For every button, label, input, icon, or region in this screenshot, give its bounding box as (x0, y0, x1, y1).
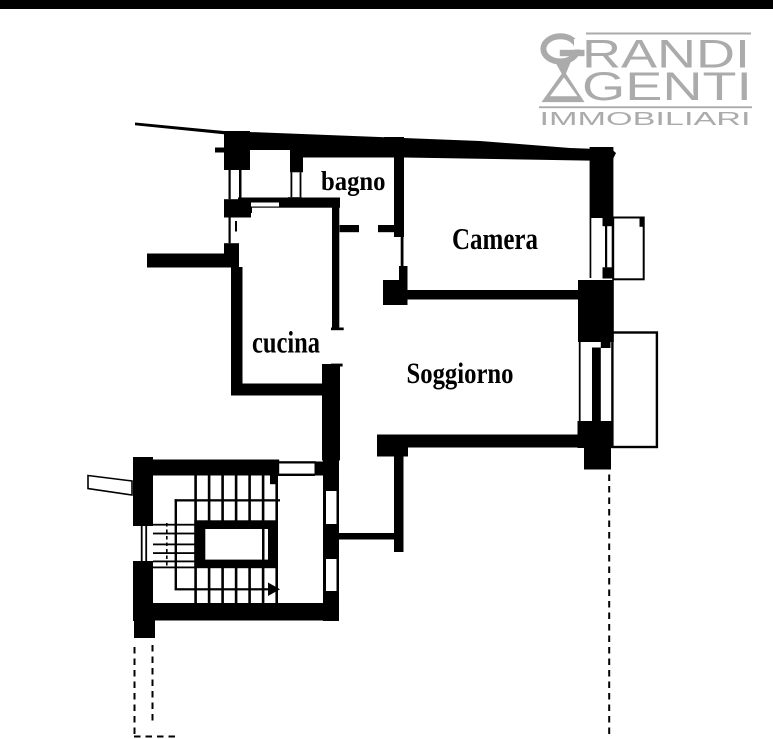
svg-text:bagno: bagno (321, 166, 386, 196)
svg-text:IMMOBILIARI: IMMOBILIARI (540, 109, 751, 129)
svg-text:Soggiorno: Soggiorno (407, 357, 514, 390)
svg-text:Camera: Camera (452, 221, 538, 256)
svg-text:cucina: cucina (252, 325, 320, 360)
svg-text:GENTI: GENTI (582, 65, 752, 109)
